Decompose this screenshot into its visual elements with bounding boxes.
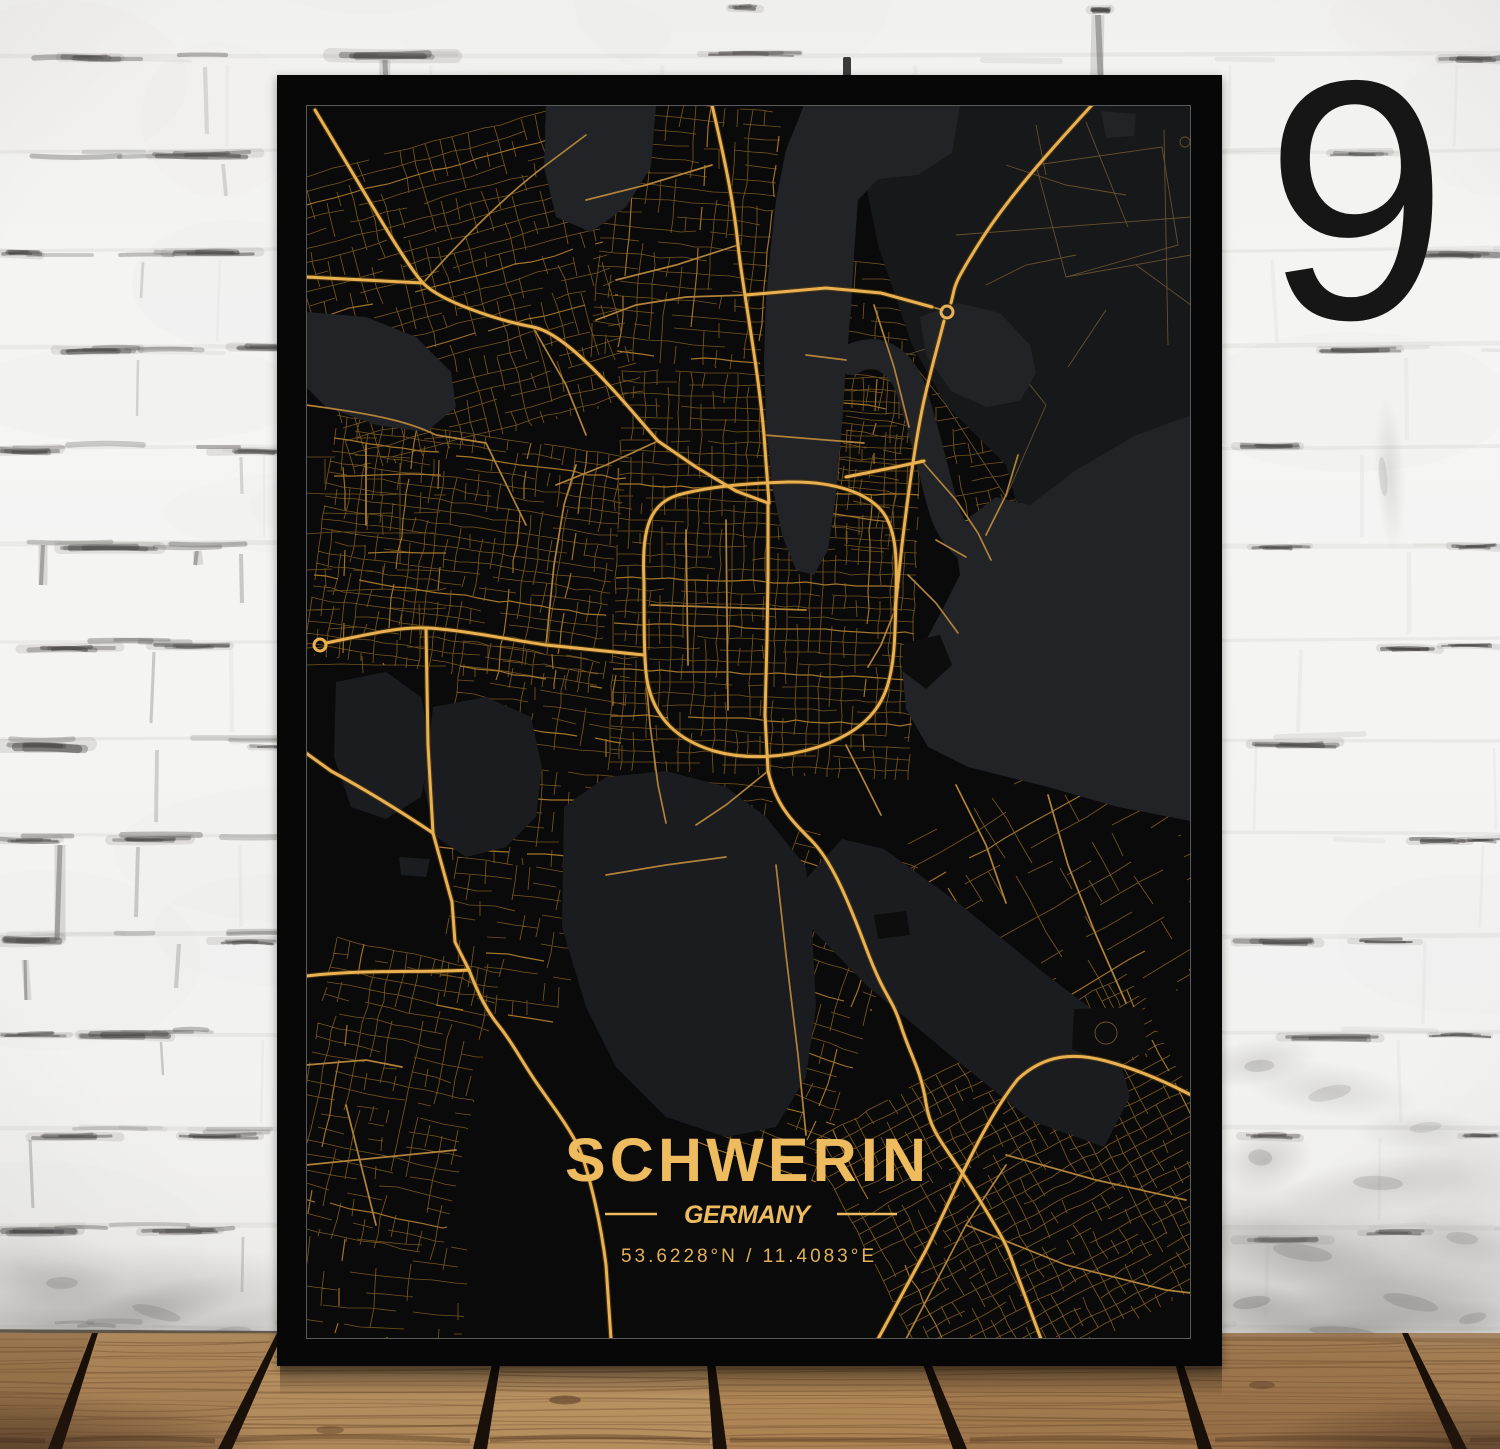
svg-text:53.6228°N / 11.4083°E: 53.6228°N / 11.4083°E	[621, 1246, 877, 1267]
svg-text:9: 9	[1265, 11, 1448, 392]
svg-text:SCHWERIN: SCHWERIN	[565, 1126, 931, 1194]
svg-text:GERMANY: GERMANY	[684, 1201, 812, 1229]
